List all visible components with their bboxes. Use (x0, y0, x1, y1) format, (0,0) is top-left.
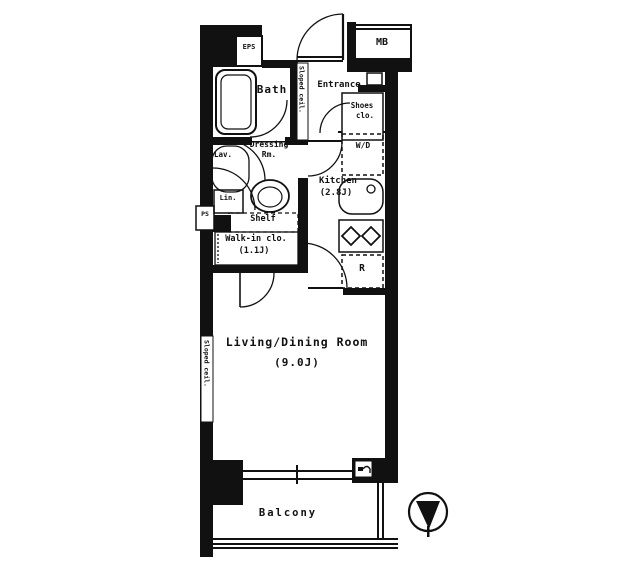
entrance-door-arc (297, 14, 343, 60)
kitchen-door-arc (308, 142, 342, 176)
dressing-room-label-2: Rm. (262, 151, 276, 160)
north-compass-icon (409, 493, 447, 537)
living-dining-label: Living/Dining Room (226, 336, 369, 349)
shelf-label: Shelf (250, 215, 276, 224)
refrigerator-label: R (359, 264, 365, 274)
meter-panel-box (367, 73, 382, 85)
balcony-window (243, 465, 352, 484)
sloped-ceiling-label-entrance: Sloped ceil. (298, 66, 305, 113)
balcony-faucet-icon (355, 461, 372, 477)
living-dining-size: (9.0J) (274, 357, 320, 369)
kitchen-label: Kitchen (319, 177, 357, 187)
shoes-closet-label-2: clo. (356, 112, 374, 120)
walkin-closet-label: Walk-in clo. (225, 235, 286, 244)
floorplan-page: EPS MB Bath Entrance Shoes clo. Sloped c… (0, 0, 640, 569)
entrance-label: Entrance (317, 81, 360, 91)
kitchen-faucet-icon (367, 185, 375, 193)
hall-door-arc (302, 243, 347, 288)
burner-icon (342, 227, 360, 245)
dressing-room-label: Dressing (250, 141, 289, 150)
walkin-closet-size: (1.1J) (239, 247, 270, 256)
linen-label: Lin. (220, 195, 237, 203)
washer-dryer-label: W/D (356, 142, 370, 151)
bathtub-inner (221, 75, 251, 129)
kitchen-size: (2.8J) (320, 189, 353, 199)
meter-box-label: MB (376, 37, 388, 48)
burner-icon (362, 227, 380, 245)
lavatory-label: Lav. (214, 151, 232, 159)
bath-label: Bath (257, 84, 288, 96)
pipe-space-label: PS (201, 211, 209, 218)
balcony-label: Balcony (259, 508, 317, 520)
toilet-bowl (258, 187, 282, 207)
eps-label: EPS (243, 44, 256, 52)
shoes-closet-label: Shoes (351, 102, 374, 110)
sloped-ceiling-label-living: Sloped ceil. (203, 340, 210, 387)
living-door-arc (240, 273, 274, 307)
